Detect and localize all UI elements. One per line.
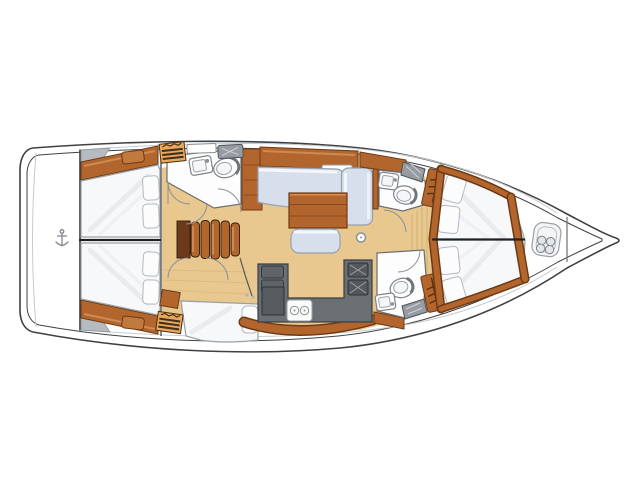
- pillow: [143, 280, 160, 305]
- reading-light: [251, 295, 254, 298]
- settee-highlight: [260, 170, 336, 172]
- deck-shelf: [187, 143, 216, 153]
- stove-icon: [287, 300, 312, 321]
- coachroof-hatch-starboard: [156, 311, 183, 333]
- pillow: [143, 204, 160, 229]
- cabin-wood-trim: [160, 290, 181, 309]
- salon-table: [289, 193, 347, 228]
- pillow: [142, 176, 159, 201]
- pillow: [438, 205, 461, 234]
- reading-light: [245, 293, 248, 296]
- sink-icon: [378, 172, 399, 190]
- pillow: [142, 252, 159, 277]
- shelf-hatch: [121, 316, 144, 331]
- sink-icon: [375, 293, 396, 311]
- shelf-hatch: [121, 150, 144, 165]
- port-aft-cabin: [81, 146, 160, 237]
- yacht-layout-plan: [0, 0, 640, 480]
- mast-foot-icon: [357, 233, 366, 242]
- sink-icon: [189, 155, 214, 176]
- coachroof-hatch-port: [159, 142, 186, 164]
- windlass-icon: [531, 221, 562, 257]
- galley-cabinet-panel: [262, 287, 284, 315]
- floorplan-canvas: [0, 0, 640, 480]
- starboard-aft-cabin: [81, 243, 160, 334]
- fridge-lid: [262, 266, 284, 278]
- instrument-hatch: [218, 144, 244, 158]
